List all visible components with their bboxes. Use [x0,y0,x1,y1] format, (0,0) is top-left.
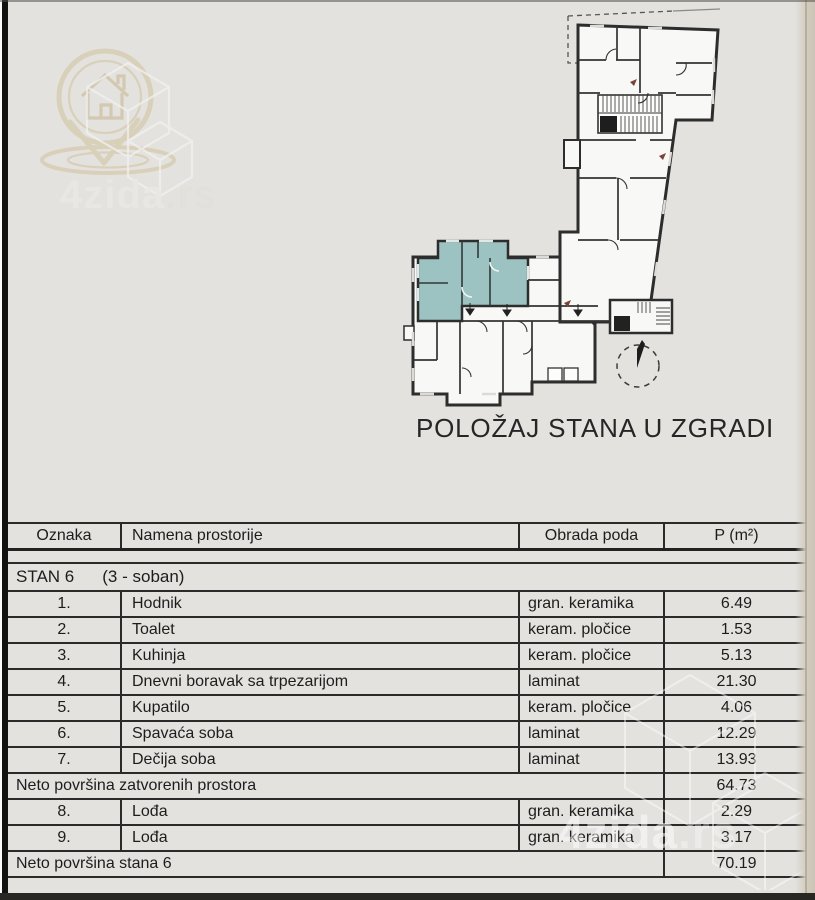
cell-p: 4.06 [663,696,808,720]
cell-obrada: gran. keramika [518,826,663,850]
cell-obrada: keram. pločice [518,644,663,668]
cell-oznaka: 6. [8,722,120,746]
column-header-p: P (m²) [663,524,808,548]
cell-obrada: laminat [518,670,663,694]
table-row: 1.Hodnikgran. keramika6.49 [8,592,808,618]
cell-p: 13.93 [663,748,808,772]
map-pin-house-icon [42,51,174,173]
table-row: 2.Toaletkeram. pločice1.53 [8,618,808,644]
building-floor-plan: 4zida.rs [0,0,815,460]
cell-p: 3.17 [663,826,808,850]
scan-edge-top-line [0,0,815,2]
table-row: 9.Lođagran. keramika3.17 [8,826,808,852]
table-row: 4.Dnevni boravak sa trpezarijomlaminat21… [8,670,808,696]
table-row: 8.Lođagran. keramika2.29 [8,800,808,826]
cell-p: 2.29 [663,800,808,824]
cell-namena: Lođa [120,800,518,824]
entrance-arrow-icon [466,303,582,316]
interior-walls [413,26,712,394]
scan-edge-line [805,0,807,900]
door-swing-icon [462,262,499,297]
table-row: 6.Spavaća sobalaminat12.29 [8,722,808,748]
cell-oznaka: 7. [8,748,120,772]
brand-watermark-text: 4zida.rs [60,173,217,217]
highlighted-apartment [418,241,528,321]
cell-namena: Toalet [120,618,518,642]
cell-p: 1.53 [663,618,808,642]
table-spacer-row [8,551,808,564]
column-header-namena: Namena prostorije [120,524,518,548]
cell-p: 64.73 [663,774,808,798]
entrance-stairs [614,302,670,331]
cell-p: 21.30 [663,670,808,694]
cell-oznaka: 5. [8,696,120,720]
apartment-label: STAN 6 [16,567,74,587]
cell-p: 70.19 [663,852,808,876]
unit-pointer-marks [564,79,666,307]
cell-oznaka: 1. [8,592,120,616]
cell-namena: Lođa [120,826,518,850]
cell-p: 5.13 [663,644,808,668]
window-marks [413,26,714,394]
entrance-core [610,300,672,333]
cell-oznaka: 2. [8,618,120,642]
brand-watermark-logo: 4zida.rs [42,51,217,217]
column-header-oznaka: Oznaka [8,524,120,548]
scan-edge-black-bar [2,0,8,900]
cell-obrada: keram. pločice [518,618,663,642]
cell-namena: Hodnik [120,592,518,616]
stairs-icon [598,95,662,133]
cell-obrada: gran. keramika [518,800,663,824]
table-header-row: Oznaka Namena prostorije Obrada poda P (… [8,524,808,551]
apartment-section-row: STAN 6 (3 - soban) [8,564,808,592]
table-rows: 1.Hodnikgran. keramika6.492.Toaletkeram.… [8,592,808,878]
column-header-obrada: Obrada poda [518,524,663,548]
cell-namena: Dečija soba [120,748,518,772]
window-marks [418,241,528,301]
cell-namena: Kupatilo [120,696,518,720]
table-row: 3.Kuhinjakeram. pločice5.13 [8,644,808,670]
cell-namena: Neto površina zatvorenih prostora [8,774,663,798]
cell-oznaka: 3. [8,644,120,668]
cell-namena: Dnevni boravak sa trpezarijom [120,670,518,694]
cell-p: 6.49 [663,592,808,616]
cell-obrada: laminat [518,722,663,746]
cell-p: 12.29 [663,722,808,746]
plan-caption: POLOŽAJ STANA U ZGRADI [416,413,774,444]
summary-row: Neto površina zatvorenih prostora64.73 [8,774,808,800]
cell-obrada: gran. keramika [518,592,663,616]
cell-namena: Kuhinja [120,644,518,668]
table-row: 7.Dečija sobalaminat13.93 [8,748,808,774]
scan-edge-bottom-bar [0,893,815,900]
cell-namena: Spavaća soba [120,722,518,746]
cell-obrada: laminat [518,748,663,772]
apartment-rooms-label: (3 - soban) [102,567,184,587]
building-outline [404,25,718,405]
area-table: Oznaka Namena prostorije Obrada poda P (… [8,522,809,878]
loggia-windows [548,368,578,381]
scanned-floorplan-document: 4zida.rs [0,0,815,900]
cell-obrada: keram. pločice [518,696,663,720]
table-row: 5.Kupatilokeram. pločice4.06 [8,696,808,722]
cell-namena: Neto površina stana 6 [8,852,663,876]
cube-watermark-icon [87,63,192,196]
cell-oznaka: 9. [8,826,120,850]
summary-row: Neto površina stana 670.19 [8,852,808,878]
cell-oznaka: 4. [8,670,120,694]
north-compass-icon [617,340,659,387]
cell-oznaka: 8. [8,800,120,824]
door-swing-icon [462,49,686,377]
parcel-boundary-lines [568,9,720,63]
